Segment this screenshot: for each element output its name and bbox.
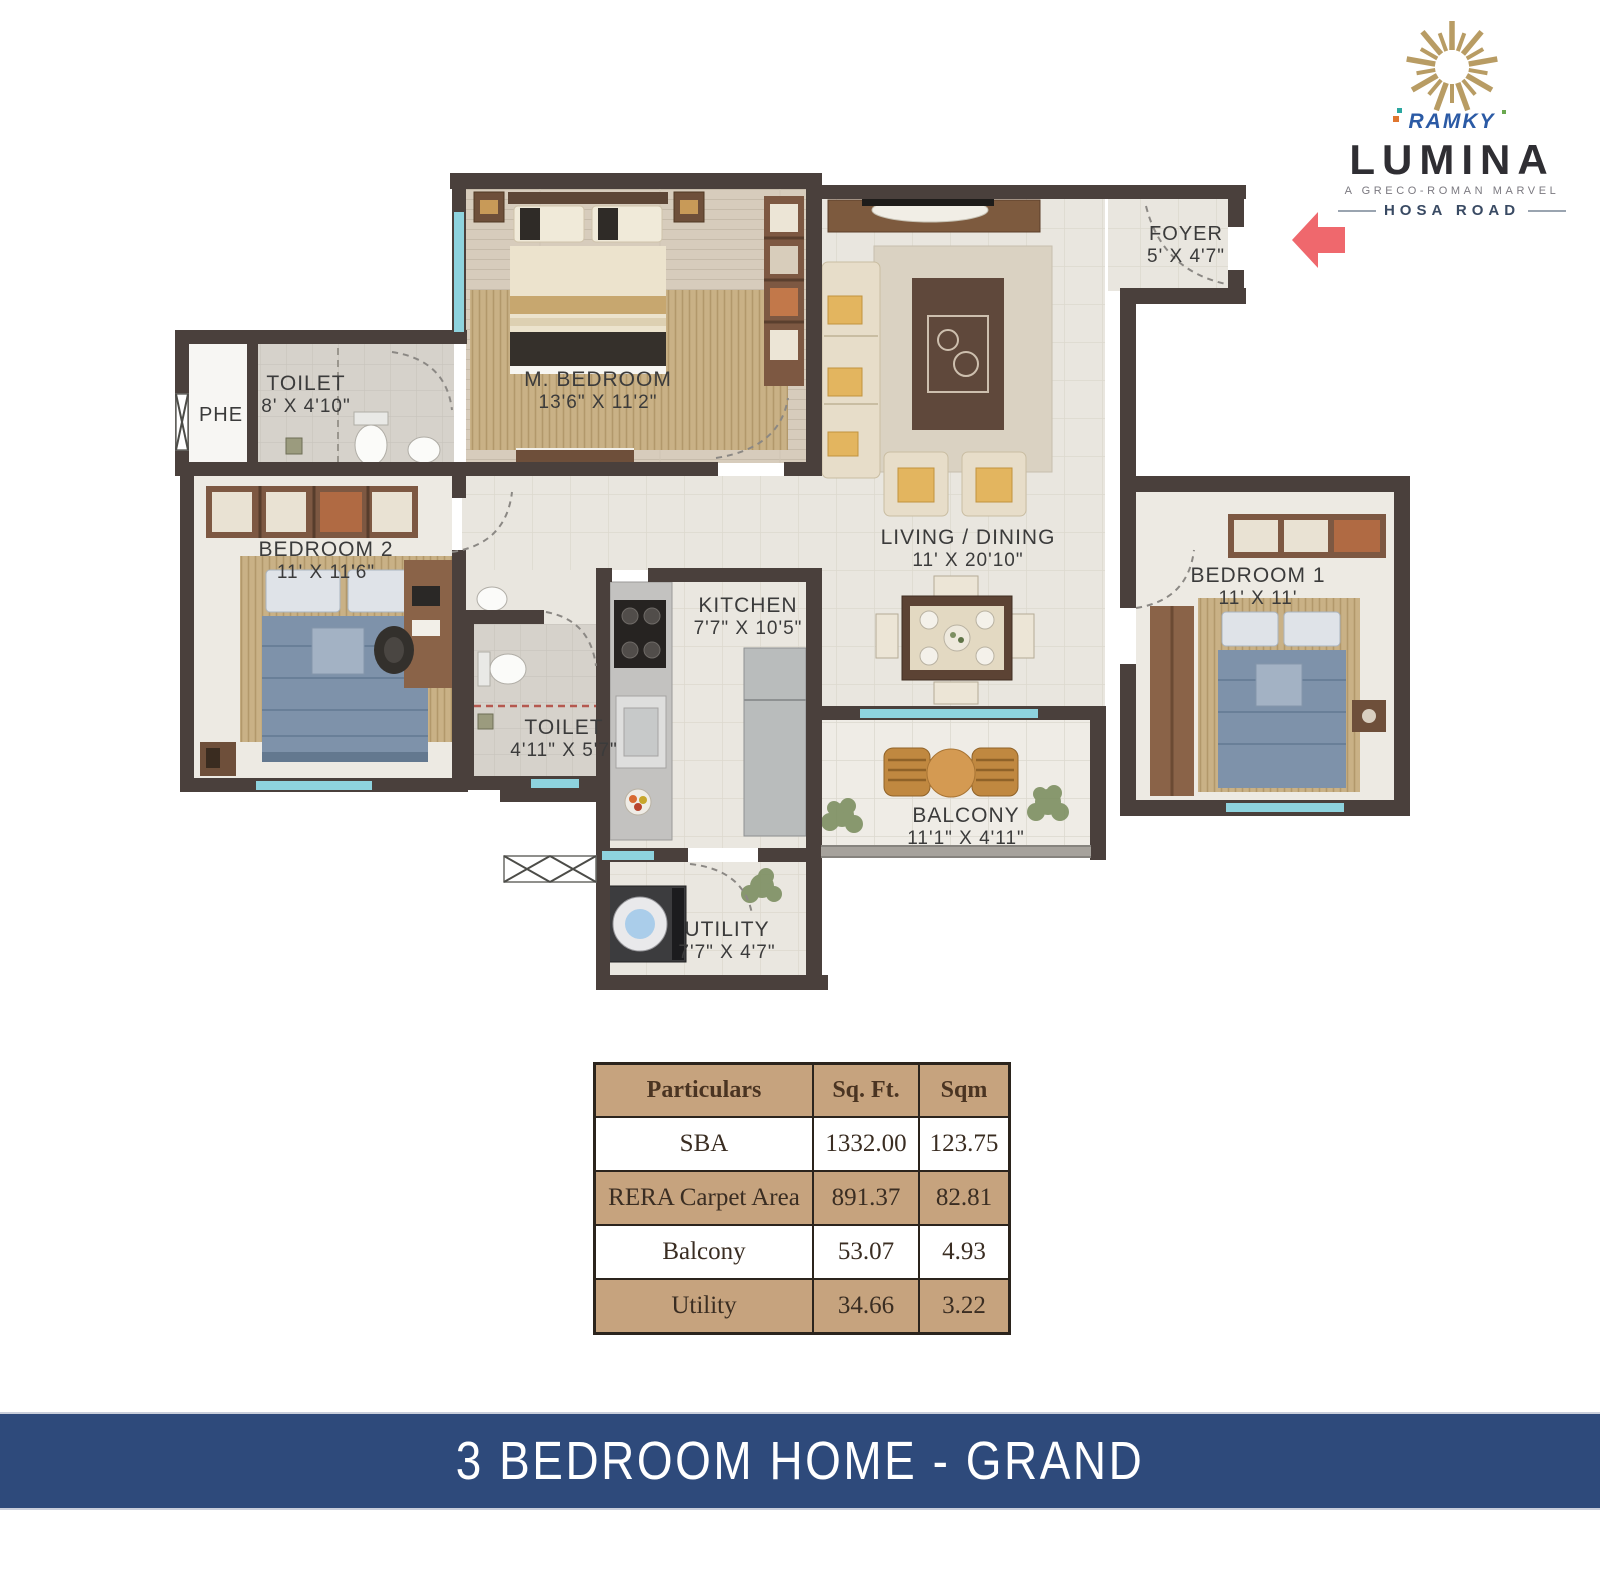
room-label-toilet-1: TOILET 8' X 4'10" <box>261 372 351 418</box>
room-label-foyer: FOYER 5' X 4'7" <box>1147 222 1225 268</box>
header-sqft: Sq. Ft. <box>813 1064 919 1118</box>
room-label-utility: UTILITY 7'7" X 4'7" <box>678 918 775 964</box>
brand-wordmark: RAMKY <box>1409 110 1496 136</box>
table-row-balcony: Balcony 53.07 4.93 <box>595 1225 1010 1279</box>
logo-teal-square-icon <box>1397 108 1402 113</box>
room-label-toilet-2: TOILET 4'11" X 5'7" <box>510 716 617 762</box>
divider-line <box>1528 210 1566 212</box>
room-label-kitchen: KITCHEN 7'7" X 10'5" <box>694 594 803 640</box>
area-table: Particulars Sq. Ft. Sqm SBA 1332.00 123.… <box>593 1062 1011 1335</box>
header-sqm: Sqm <box>919 1064 1010 1118</box>
table-row-rera-carpet-area: RERA Carpet Area 891.37 82.81 <box>595 1171 1010 1225</box>
room-label-balcony: BALCONY 11'1" X 4'11" <box>907 804 1025 850</box>
area-table-header-row: Particulars Sq. Ft. Sqm <box>595 1064 1010 1118</box>
brand-logo: RAMKY LUMINA A GRECO-ROMAN MARVEL HOSA R… <box>1322 20 1582 219</box>
header-particulars: Particulars <box>595 1064 814 1118</box>
room-label-bedroom-1: BEDROOM 1 11' X 11' <box>1190 564 1325 610</box>
table-row-utility: Utility 34.66 3.22 <box>595 1279 1010 1334</box>
room-label-bedroom-2: BEDROOM 2 11' X 11'6" <box>258 538 393 584</box>
page: FOYER 5' X 4'7" M. BEDROOM 13'6" X 11'2"… <box>0 0 1600 1593</box>
project-location: HOSA ROAD <box>1338 202 1566 219</box>
plan-title: 3 BEDROOM HOME - GRAND <box>456 1430 1145 1492</box>
room-label-phe: PHE <box>199 403 243 427</box>
room-label-living-dining: LIVING / DINING 11' X 20'10" <box>881 526 1056 572</box>
brand-name: RAMKY <box>1409 110 1496 133</box>
table-row-sba: SBA 1332.00 123.75 <box>595 1117 1010 1171</box>
entry-arrow-icon <box>1292 212 1345 268</box>
room-label-m-bedroom: M. BEDROOM 13'6" X 11'2" <box>524 368 672 414</box>
logo-orange-square-icon <box>1393 116 1399 122</box>
project-name: LUMINA <box>1349 138 1554 182</box>
logo-green-square-icon <box>1502 110 1506 114</box>
footer-banner: 3 BEDROOM HOME - GRAND <box>0 1412 1600 1510</box>
divider-line <box>1338 210 1376 212</box>
project-tagline: A GRECO-ROMAN MARVEL <box>1345 185 1560 197</box>
foyer-door-opening <box>1228 227 1244 270</box>
sunburst-icon <box>1405 20 1499 114</box>
